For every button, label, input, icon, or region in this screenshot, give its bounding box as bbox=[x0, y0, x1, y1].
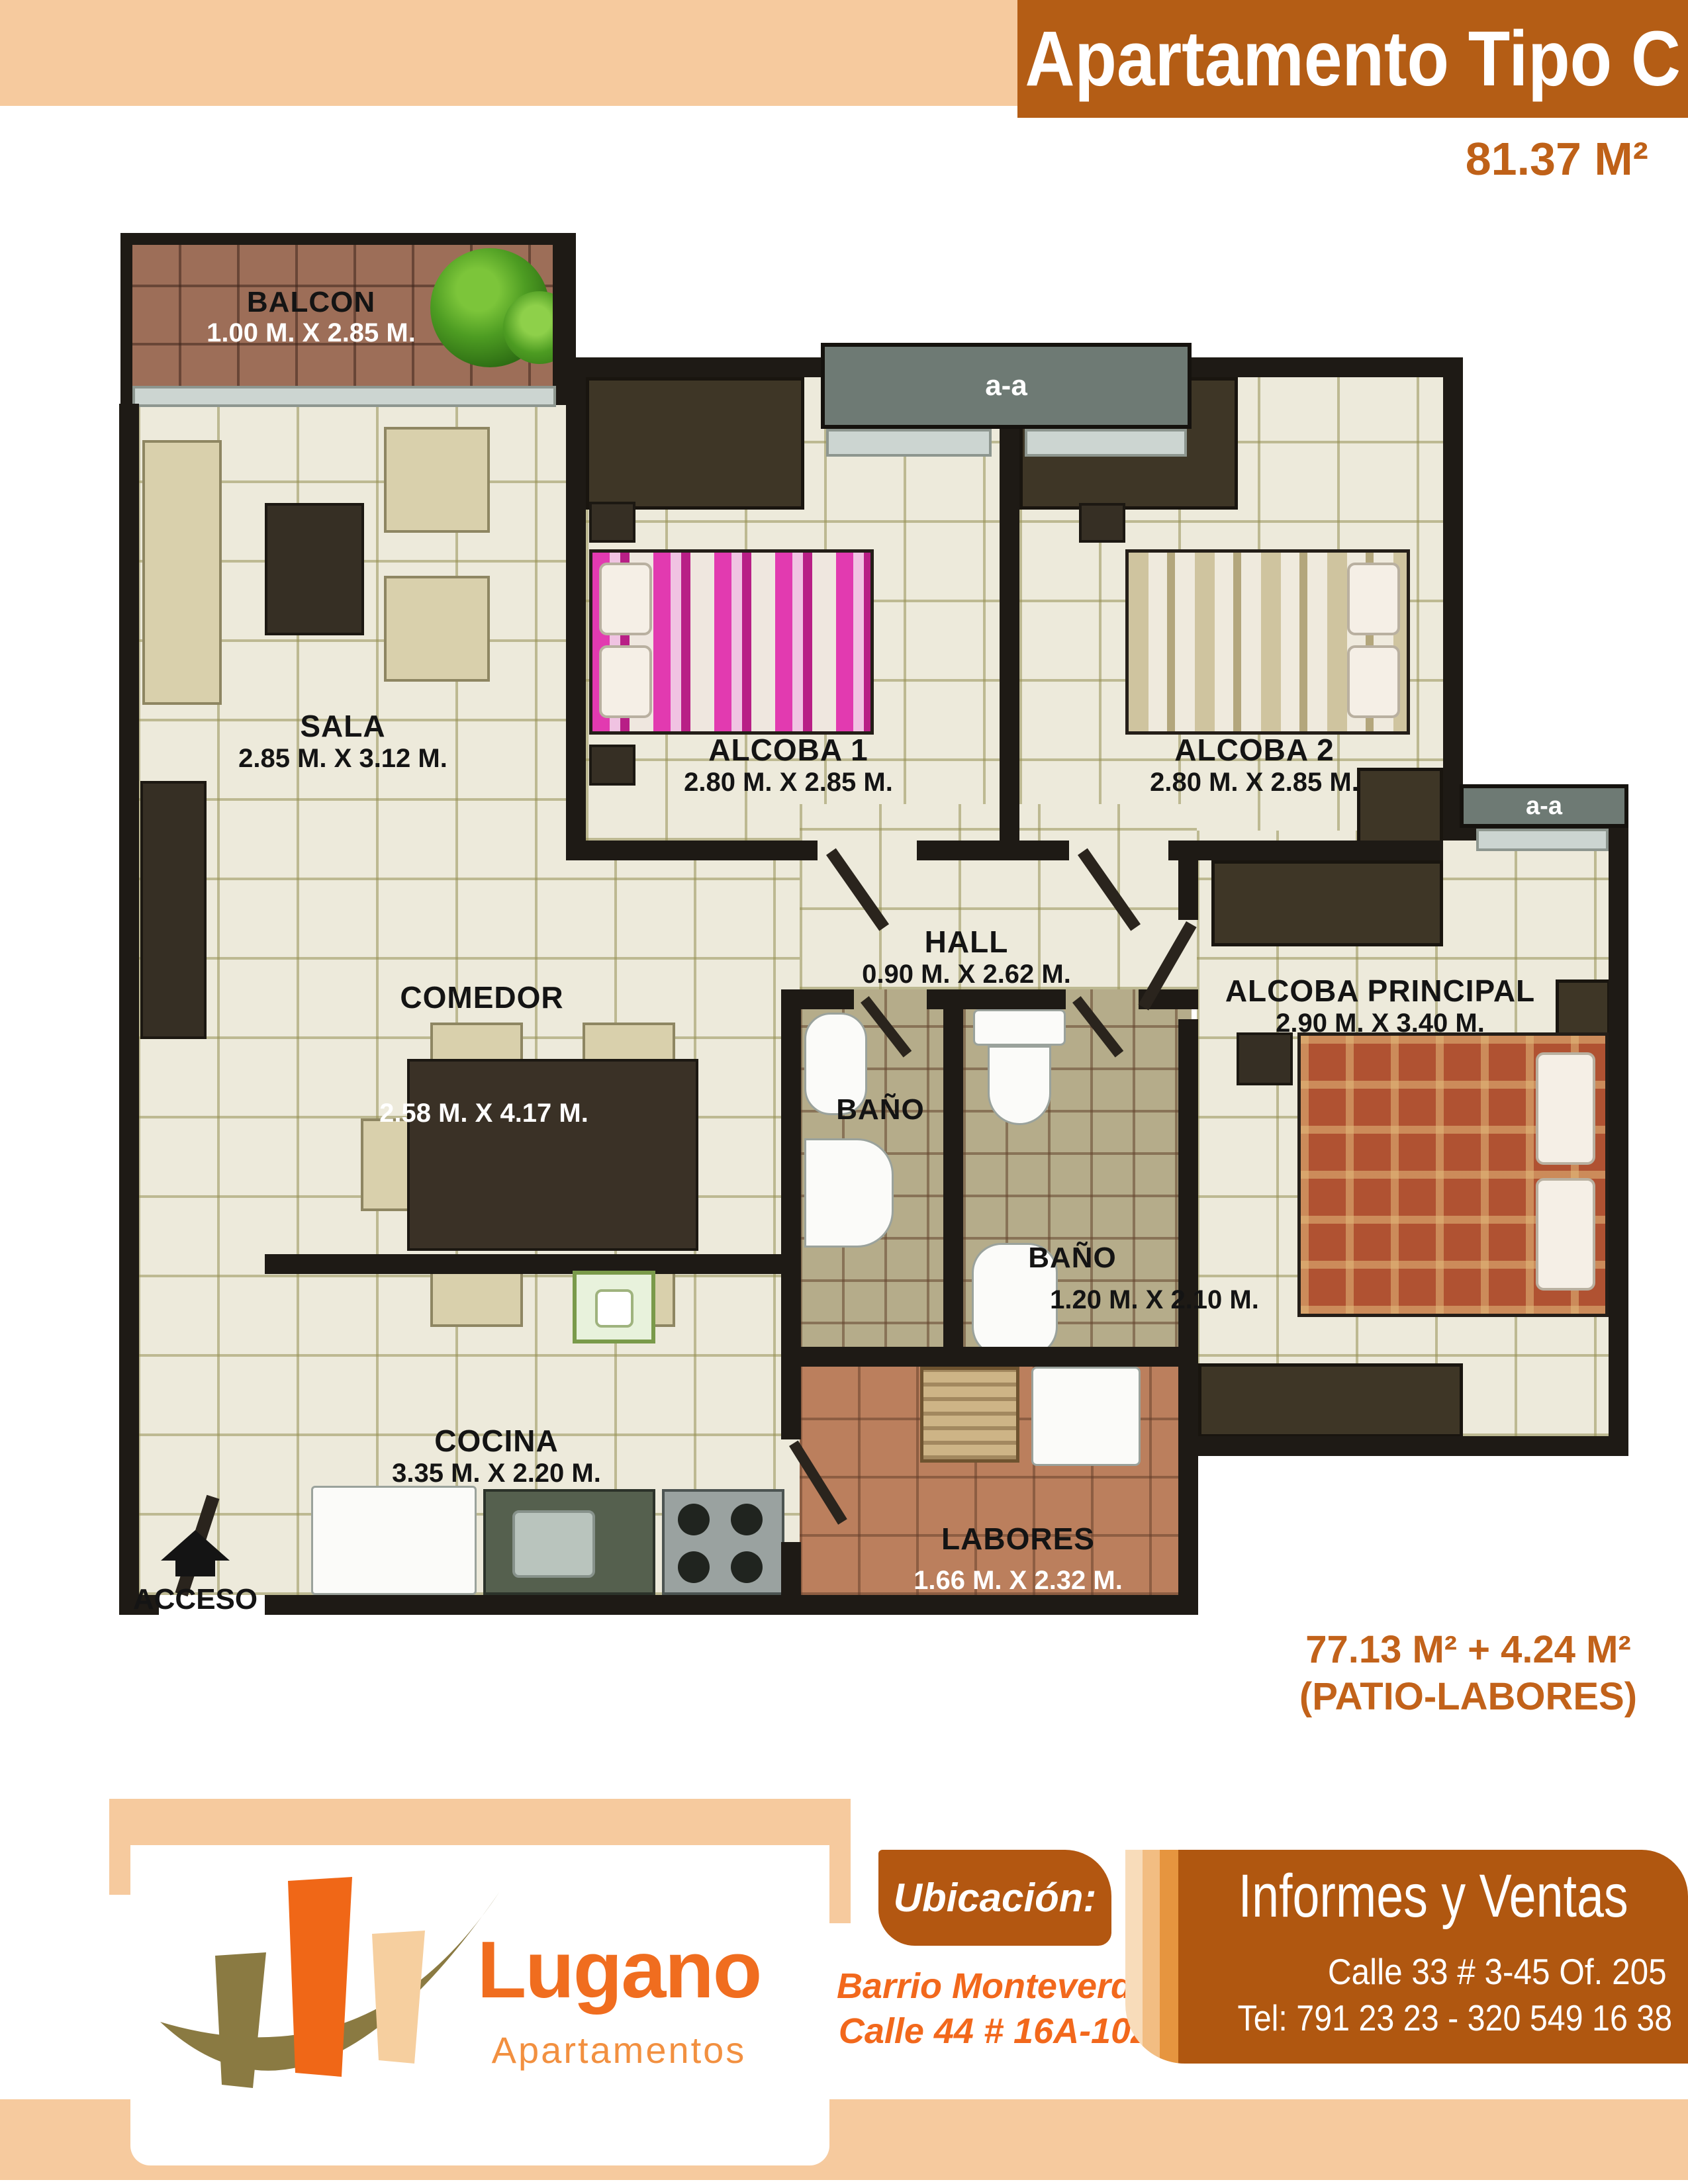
wall bbox=[1178, 860, 1198, 920]
logo-frame-top bbox=[109, 1799, 851, 1845]
fridge bbox=[311, 1486, 477, 1595]
section-marker-label: a-a bbox=[1526, 792, 1562, 821]
wall bbox=[1168, 841, 1443, 860]
floor-plan: a-a a-a BALCON 1.00 M. X 2.85 M. SALA 2.… bbox=[0, 0, 1688, 1621]
informes-title: Informes y Ventas bbox=[1178, 1862, 1688, 1931]
kitchen-sink-counter bbox=[483, 1489, 655, 1595]
room-label-labores: LABORES 1.66 M. X 2.32 M. bbox=[820, 1522, 1217, 1595]
pillow bbox=[1347, 645, 1400, 718]
room-label-comedor: COMEDOR bbox=[297, 981, 667, 1015]
toilet-bath1 bbox=[804, 1138, 894, 1248]
ubicacion-title: Ubicación: bbox=[894, 1875, 1097, 1921]
room-dims-bano2: 1.20 M. X 2.10 M. bbox=[956, 1285, 1353, 1315]
burner bbox=[678, 1504, 710, 1535]
informes-line2: Tel: 791 23 23 - 320 549 16 38 bbox=[1143, 1997, 1672, 2039]
area-note-line2: (PATIO-LABORES) bbox=[1270, 1674, 1667, 1721]
ubicacion-address: Barrio Monteverde Calle 44 # 16A-102 bbox=[811, 1964, 1178, 2054]
area-note-line1: 77.13 M² + 4.24 M² bbox=[1270, 1627, 1667, 1674]
room-label-bano2: BAÑO bbox=[940, 1242, 1205, 1274]
section-marker-label: a-a bbox=[985, 369, 1027, 402]
informes-panel: Informes y Ventas Calle 33 # 3-45 Of. 20… bbox=[1125, 1850, 1688, 2064]
pillow bbox=[599, 645, 652, 718]
closet-principal-top bbox=[1211, 860, 1443, 946]
kitchen-half-wall bbox=[265, 1254, 781, 1274]
room-label-alcoba2: ALCOBA 2 2.80 M. X 2.85 M. bbox=[1069, 733, 1440, 797]
access-arrow-stem bbox=[175, 1559, 215, 1576]
ubicacion-line1: Barrio Monteverde bbox=[811, 1964, 1178, 2009]
wall bbox=[119, 404, 139, 1615]
wall bbox=[265, 1595, 801, 1615]
sink-basin bbox=[595, 1289, 633, 1328]
logo-name: Lugano bbox=[463, 1929, 774, 2010]
burner bbox=[731, 1551, 763, 1583]
tv-console bbox=[140, 781, 207, 1039]
coffee-table bbox=[265, 503, 364, 635]
sofa bbox=[142, 440, 222, 705]
logo-bar-orange bbox=[288, 1877, 352, 2077]
pillow bbox=[1536, 1052, 1595, 1165]
logo-wordmark: Lugano Apartamentos bbox=[463, 1929, 774, 2071]
window-alcoba2 bbox=[1025, 429, 1187, 457]
logo-subtitle: Apartamentos bbox=[463, 2028, 774, 2071]
wall bbox=[781, 1542, 801, 1615]
room-dims-comedor: 2.58 M. X 4.17 M. bbox=[299, 1099, 669, 1128]
pillow bbox=[1347, 563, 1400, 635]
nightstand bbox=[1079, 503, 1125, 543]
area-note: 77.13 M² + 4.24 M² (PATIO-LABORES) bbox=[1270, 1627, 1667, 1721]
washer bbox=[1031, 1367, 1141, 1466]
section-slab-right: a-a bbox=[1460, 784, 1628, 828]
room-label-alcoba-principal: ALCOBA PRINCIPAL 2.90 M. X 3.40 M. bbox=[1182, 974, 1579, 1038]
pillow bbox=[1536, 1178, 1595, 1291]
burner bbox=[731, 1504, 763, 1535]
wall bbox=[1609, 831, 1628, 1456]
wall bbox=[917, 841, 1069, 860]
nightstand bbox=[589, 502, 635, 543]
stove bbox=[662, 1489, 784, 1595]
room-label-bano1: BAÑO bbox=[748, 1093, 1013, 1126]
window-alcoba1 bbox=[826, 429, 992, 457]
ubicacion-line2: Calle 44 # 16A-102 bbox=[811, 2009, 1178, 2054]
access-label: ACCESO bbox=[63, 1583, 328, 1615]
room-label-sala: SALA 2.85 M. X 3.12 M. bbox=[158, 709, 528, 773]
toilet-bath2 bbox=[973, 1009, 1066, 1046]
kitchen-sink-island bbox=[573, 1271, 655, 1343]
logo-frame-left bbox=[109, 1799, 130, 1895]
closet-alcoba1 bbox=[586, 377, 804, 510]
informes-line1: Calle 33 # 3-45 Of. 205 bbox=[1150, 1950, 1667, 1993]
dining-table bbox=[407, 1059, 698, 1251]
window-sala bbox=[132, 386, 556, 407]
wall bbox=[566, 357, 586, 860]
wall bbox=[781, 1347, 1198, 1367]
logo-bar-peach bbox=[372, 1931, 425, 2064]
nightstand bbox=[1237, 1032, 1293, 1085]
wall bbox=[566, 841, 818, 860]
laundry-basket bbox=[920, 1367, 1019, 1463]
logo-frame-right bbox=[829, 1799, 851, 1923]
closet-principal-bottom bbox=[1198, 1363, 1463, 1437]
wall bbox=[781, 989, 801, 1439]
window-principal bbox=[1476, 829, 1609, 851]
wall bbox=[120, 233, 576, 245]
room-label-hall: HALL 0.90 M. X 2.62 M. bbox=[781, 925, 1152, 989]
room-label-cocina: COCINA 3.35 M. X 2.20 M. bbox=[311, 1424, 682, 1488]
flyer-page: Apartamento Tipo C 81.37 M² bbox=[0, 0, 1688, 2184]
room-label-balcon: BALCON 1.00 M. X 2.85 M. bbox=[126, 286, 496, 348]
section-slab-top: a-a bbox=[821, 343, 1192, 429]
ubicacion-box: Ubicación: bbox=[878, 1850, 1111, 1946]
access-arrow-icon bbox=[161, 1530, 230, 1561]
armchair-1 bbox=[384, 427, 490, 533]
room-label-alcoba1: ALCOBA 1 2.80 M. X 2.85 M. bbox=[603, 733, 974, 797]
wall bbox=[1198, 1436, 1628, 1456]
burner bbox=[678, 1551, 710, 1583]
steel-sink bbox=[512, 1510, 595, 1578]
wall bbox=[800, 1595, 1198, 1615]
armchair-2 bbox=[384, 576, 490, 682]
pillow bbox=[599, 563, 652, 635]
wall bbox=[1000, 377, 1019, 841]
wall bbox=[1443, 357, 1463, 821]
